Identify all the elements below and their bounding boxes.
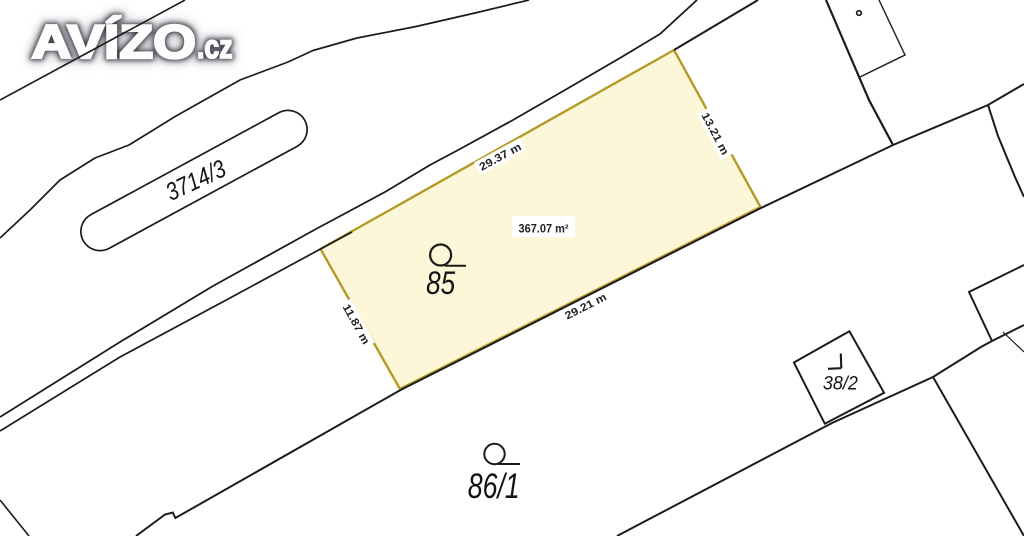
svg-text:38/2: 38/2 xyxy=(823,373,858,394)
svg-text:85: 85 xyxy=(426,265,455,301)
svg-text:86/1: 86/1 xyxy=(468,467,520,506)
svg-text:AVÍZO: AVÍZO xyxy=(32,15,197,68)
svg-text:.cz: .cz xyxy=(197,28,233,65)
svg-text:367.07 m²: 367.07 m² xyxy=(519,224,569,236)
